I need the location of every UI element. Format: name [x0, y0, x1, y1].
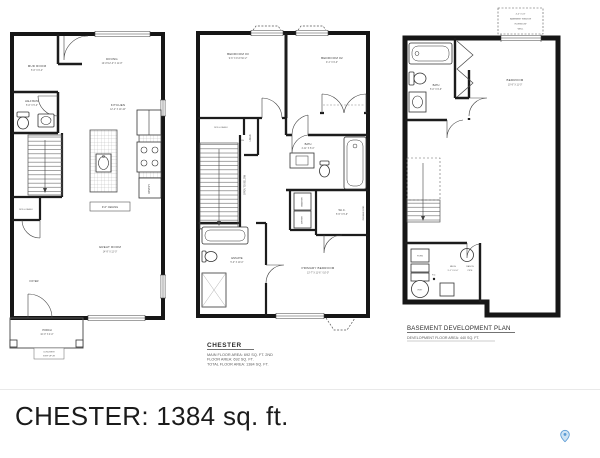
plan2-title: CHESTER [207, 342, 242, 349]
sink [409, 92, 426, 112]
footer-divider [0, 389, 600, 390]
fd-label: F.D. [432, 275, 436, 277]
basement-plan: 4'-0" X 24" BASEMENT WINDOW IN WINDOW WE… [405, 8, 558, 341]
bathtub [202, 227, 248, 244]
map-pin-icon [560, 429, 570, 443]
half-bath-dim: 5'-6" X 5'-0" [26, 105, 38, 107]
note-line: IN WINDOW [515, 24, 527, 26]
dining-dim: 10'-0"/12'-0" X 11'-8" [102, 63, 123, 65]
dryer: DRYER [294, 211, 311, 228]
bath-label: BATH [305, 142, 312, 146]
ceiling-tag: 9'-0" CEILING [90, 202, 130, 211]
washer: WASHER [294, 193, 311, 210]
radon-label1: RADON [466, 265, 474, 268]
toilet [320, 161, 330, 177]
half-bath-label: HALF BATH [25, 99, 39, 103]
plan3-subtitle: DEVELOPMENT FLOOR AREA: 440 SQ. FT. [407, 336, 479, 340]
washer-label: WASHER [301, 197, 304, 207]
step-up-label: STEP UP 2R [43, 356, 56, 358]
mud-room-dim: 5'-6" X 6'-4" [31, 70, 43, 72]
pantry-cabinet: PANTRY [139, 178, 161, 198]
note-line: WELL [518, 29, 525, 31]
dn-label: DN [241, 140, 245, 142]
area-line3: TOTAL FLOOR AREA: 1384 SQ. FT. [207, 363, 269, 367]
dryer-label: DRYER [302, 216, 304, 224]
window [501, 35, 541, 43]
plan3-title: BASEMENT DEVELOPMENT PLAN [407, 325, 511, 332]
stove [137, 142, 161, 172]
floor-plan-sheet: PANTRY MUD ROOM 5'-6" X 6'-4" DINING [0, 0, 600, 458]
second-floor-plan: DN OPEN TO BELOW WASHER DRYER [198, 26, 368, 367]
concrete-label: CONCRETE [43, 352, 55, 354]
primary-bedroom-label: PRIMARY BEDROOM [302, 266, 335, 270]
porch-dim: 10'-0" X 4'-0" [40, 334, 53, 336]
kitchen-dim: 12'-2" X 10'-10" [110, 109, 126, 111]
shower [202, 273, 226, 307]
main-floor-plan: PANTRY MUD ROOM 5'-6" X 6'-4" DINING [10, 31, 166, 359]
bathtub [409, 43, 452, 64]
bedroom-dim: 10'-9" X 11'-0" [508, 85, 523, 87]
window-well-note: 4'-0" X 24" BASEMENT WINDOW IN WINDOW WE… [498, 8, 543, 34]
equipment-box [440, 283, 454, 296]
hwt-label: HWT [418, 290, 423, 292]
linen-label: LINEN [249, 134, 252, 141]
primary-bedroom-dim: 13'-7" X 11'-6" / 10'-0" [307, 273, 329, 275]
note-line: BASEMENT WINDOW [510, 18, 531, 21]
vanity-sink [290, 153, 314, 168]
page-title: CHESTER: 1384 sq. ft. [15, 401, 289, 432]
bay-window [326, 318, 355, 330]
kitchen-island [90, 130, 117, 192]
shelf [411, 264, 429, 272]
bedroom2-label: BEDROOM #2 [321, 56, 343, 60]
rod-shelf-label: ROD & SHELF [19, 209, 34, 211]
water-heater: HWT [412, 281, 429, 298]
area-line1: MAIN FLOOR AREA: 692 SQ. FT. 2ND [207, 353, 273, 357]
dining-label: DINING [106, 57, 118, 61]
stairs [28, 135, 62, 195]
shelf [411, 273, 429, 281]
furnace-label: FURN [417, 256, 423, 258]
furnace: FURN [411, 249, 429, 262]
kitchen-label: KITCHEN [111, 103, 126, 107]
open-to-below-label: OPEN TO BELOW [244, 174, 247, 195]
bedroom2-dim: 9'-1" X 9'-0" [326, 62, 338, 64]
mud-room-label: MUD ROOM [28, 64, 47, 68]
bedroom3-label: BEDROOM #3 [227, 52, 249, 56]
rod-shelf-label: ROD & SHELF [214, 127, 229, 129]
toilet [409, 72, 426, 85]
porch-label: PORCH [42, 328, 51, 332]
bedroom3-dim: 9'-6" X 9'-6"/10'-2" [229, 58, 248, 60]
toilet [202, 251, 217, 262]
stairs [200, 143, 238, 229]
radon-label2: PIPE [468, 270, 473, 272]
floor-plans-canvas: PANTRY MUD ROOM 5'-6" X 6'-4" DINING [0, 0, 600, 396]
bath-label: BATH [433, 83, 440, 87]
bathtub [344, 137, 366, 189]
note-line: 4'-0" X 24" [516, 14, 526, 16]
wic-dim: 5'-5" X 5'-6" [336, 214, 348, 216]
bath-dim: 4'-11" X 5'-0" [301, 148, 314, 150]
fridge [137, 110, 161, 135]
ensuite-dim: 5'-0" X 10'-0" [230, 262, 243, 264]
bedroom-label: BEDROOM [507, 78, 524, 82]
ensuite-label: ENSUITE [231, 256, 243, 260]
great-room-label: GREAT ROOM [99, 245, 122, 249]
double-rod-label: DOUBLE ROD [363, 205, 365, 220]
toilet [17, 112, 29, 129]
ceiling-label: 9'-0" CEILING [102, 205, 118, 209]
sink [38, 114, 54, 127]
pantry-label: PANTRY [148, 184, 151, 194]
great-room-dim: 14'-9" X 12'-0" [103, 252, 118, 254]
mech-dim: 9'-1" X 6'-6" [448, 270, 459, 272]
foyer-label: FOYER [30, 279, 39, 283]
wic-label: W.I.C. [338, 208, 345, 212]
area-line2: FLOOR AREA: 692 SQ. FT. [207, 358, 254, 362]
bath-dim: 5'-0" X 9'-6" [430, 89, 442, 91]
mech-label: MECH [450, 266, 457, 268]
